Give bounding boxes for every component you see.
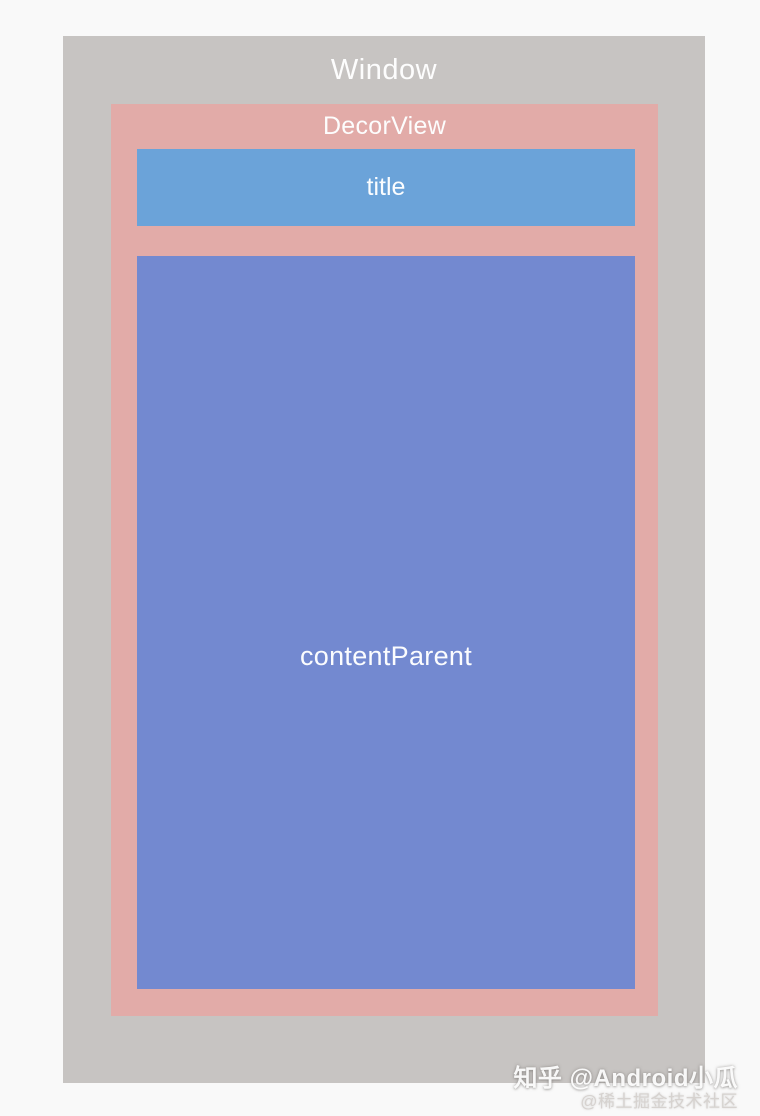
window-box: Window DecorView title contentParent	[63, 36, 705, 1083]
watermark-juejin-line: @稀土掘金技术社区	[513, 1093, 738, 1112]
window-label: Window	[63, 36, 705, 104]
title-bar-box: title	[137, 149, 635, 226]
decorview-label: DecorView	[111, 104, 658, 149]
content-parent-label: contentParent	[137, 641, 635, 672]
content-parent-box: contentParent	[137, 256, 635, 989]
title-bar-label: title	[367, 173, 406, 202]
decorview-box: DecorView title contentParent	[111, 104, 658, 1016]
diagram-canvas: Window DecorView title contentParent 知乎 …	[0, 0, 760, 1116]
